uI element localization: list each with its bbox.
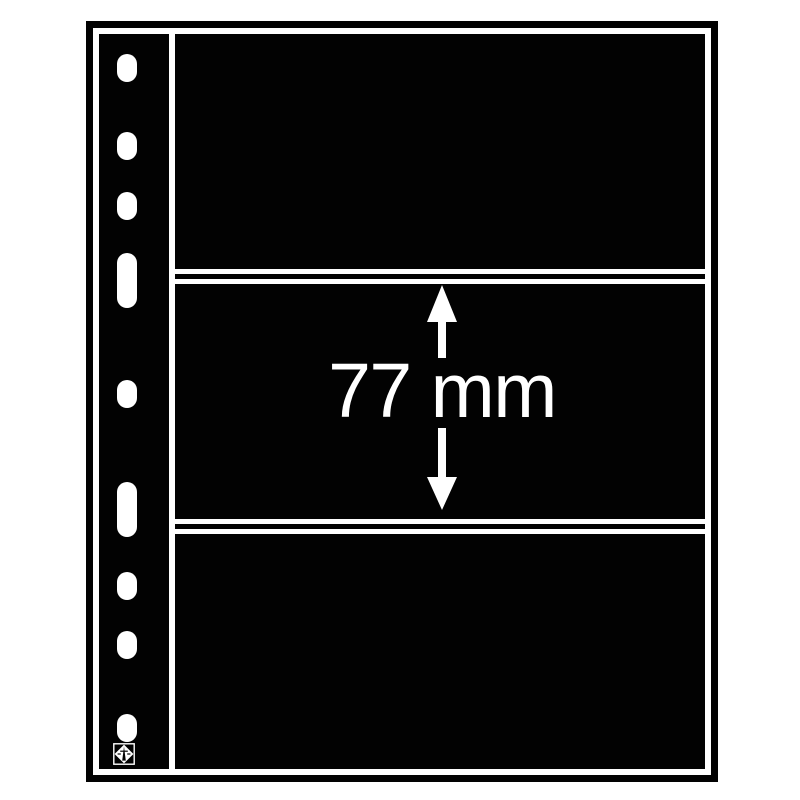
- lighthouse-logo-icon: [113, 743, 135, 765]
- punch-hole: [117, 380, 137, 408]
- pocket-divider-line: [175, 269, 705, 274]
- arrow-down-icon: [427, 428, 457, 510]
- punch-hole: [117, 132, 137, 160]
- pockets-area: 77 mm: [175, 34, 705, 769]
- pocket-divider-line: [175, 279, 705, 284]
- product-image: 77 mm: [0, 0, 800, 800]
- punch-hole: [117, 572, 137, 600]
- measurement-label: 77 mm: [272, 353, 612, 430]
- punch-hole: [117, 192, 137, 220]
- punch-hole-elongated: [117, 253, 137, 308]
- pocket-divider-line: [175, 529, 705, 534]
- punch-hole: [117, 714, 137, 742]
- stock-page-sheet: 77 mm: [86, 21, 718, 782]
- binder-spine-strip: [99, 34, 169, 769]
- punch-hole: [117, 631, 137, 659]
- page-interior: 77 mm: [99, 34, 705, 769]
- punch-hole-elongated: [117, 482, 137, 537]
- pocket-divider-line: [175, 519, 705, 524]
- punch-hole: [117, 54, 137, 82]
